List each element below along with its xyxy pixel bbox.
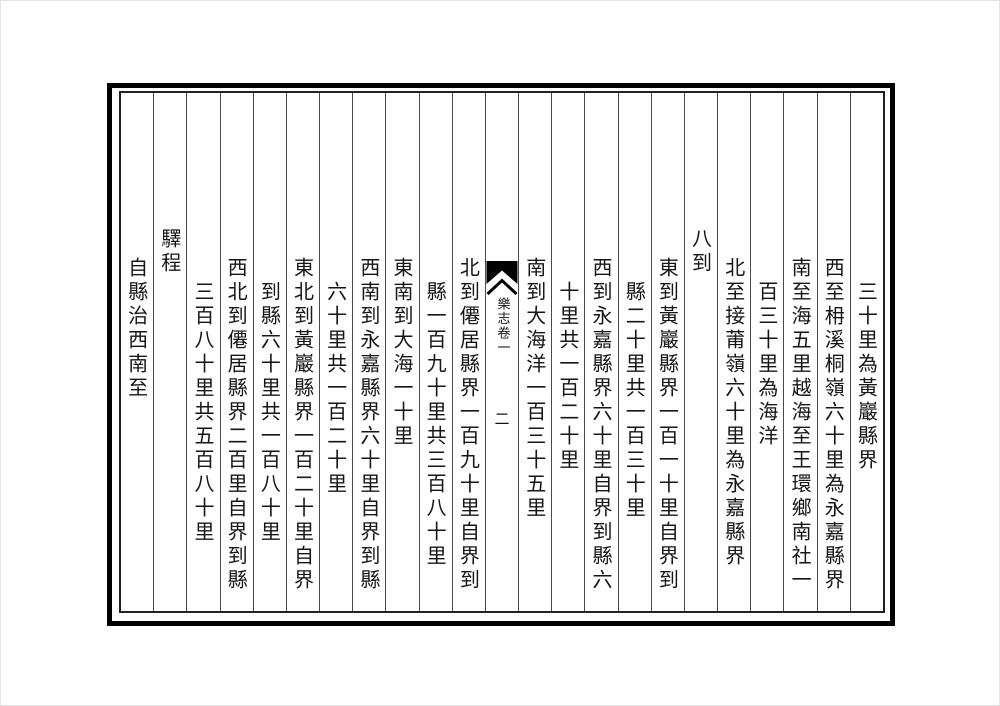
column-text: 北到僊居縣界一百九十里自界到 — [454, 257, 483, 593]
volume-title: 樂志卷一 — [493, 297, 512, 355]
text-column: 東南到大海一十里 — [386, 93, 419, 611]
text-column: 縣一百九十里共三百八十里 — [420, 93, 453, 611]
text-column: 六十里共一百二十里 — [320, 93, 353, 611]
text-columns-container: 三十里為黃巖縣界西至枏溪桐嶺六十里為永嘉縣界南至海五里越海至王環鄉南社一百三十里… — [121, 93, 883, 611]
text-column: 南至海五里越海至王環鄉南社一 — [784, 93, 817, 611]
text-column: 到縣六十里共一百八十里 — [254, 93, 287, 611]
column-text: 北至接莆嶺六十里為永嘉縣界 — [720, 257, 749, 569]
column-text: 六十里共一百二十里 — [322, 281, 351, 497]
section-heading-column: 八到 — [685, 93, 718, 611]
column-text: 西至枏溪桐嶺六十里為永嘉縣界 — [819, 257, 848, 593]
column-text: 南至海五里越海至王環鄉南社一 — [786, 257, 815, 593]
column-text: 西南到永嘉縣界六十里自界到縣 — [355, 257, 384, 593]
column-text: 西到永嘉縣界六十里自界到縣六 — [587, 257, 616, 593]
page-number: 二 — [492, 411, 513, 426]
text-column: 百三十里為海洋 — [751, 93, 784, 611]
text-column: 縣二十里共一百三十里 — [619, 93, 652, 611]
text-column: 十里共一百二十里 — [552, 93, 585, 611]
text-column: 三十里為黃巖縣界 — [851, 93, 883, 611]
text-column: 三百八十里共五百八十里 — [187, 93, 220, 611]
section-heading-column: 驛程 — [154, 93, 187, 611]
column-text: 八到 — [687, 228, 716, 276]
column-text: 自縣治西南至 — [123, 257, 152, 401]
column-text: 東到黃巖縣界一百一十里自界到 — [653, 257, 682, 593]
text-column: 西至枏溪桐嶺六十里為永嘉縣界 — [818, 93, 851, 611]
text-column: 北至接莆嶺六十里為永嘉縣界 — [718, 93, 751, 611]
column-text: 東南到大海一十里 — [388, 257, 417, 449]
plate-inner-frame: 三十里為黃巖縣界西至枏溪桐嶺六十里為永嘉縣界南至海五里越海至王環鄉南社一百三十里… — [119, 91, 885, 613]
fold-column: 樂志卷一二 — [486, 93, 519, 611]
text-column: 西北到僊居縣界二百里自界到縣 — [221, 93, 254, 611]
text-column: 西南到永嘉縣界六十里自界到縣 — [353, 93, 386, 611]
column-text: 十里共一百二十里 — [554, 281, 583, 473]
text-column: 東北到黃巖縣界一百二十里自界 — [287, 93, 320, 611]
scanned-page: 三十里為黃巖縣界西至枏溪桐嶺六十里為永嘉縣界南至海五里越海至王環鄉南社一百三十里… — [0, 0, 1000, 706]
column-text: 東北到黃巖縣界一百二十里自界 — [288, 257, 317, 593]
text-column: 自縣治西南至 — [121, 93, 154, 611]
column-text: 南到大海洋一百三十五里 — [521, 257, 550, 521]
text-column: 東到黃巖縣界一百一十里自界到 — [652, 93, 685, 611]
text-column: 北到僊居縣界一百九十里自界到 — [453, 93, 486, 611]
column-text: 西北到僊居縣界二百里自界到縣 — [222, 257, 251, 593]
column-text: 三百八十里共五百八十里 — [189, 281, 218, 545]
column-text: 縣一百九十里共三百八十里 — [421, 281, 450, 569]
column-text: 三十里為黃巖縣界 — [852, 281, 881, 473]
text-column: 西到永嘉縣界六十里自界到縣六 — [585, 93, 618, 611]
column-text: 百三十里為海洋 — [753, 281, 782, 449]
column-text: 縣二十里共一百三十里 — [620, 281, 649, 521]
text-column: 南到大海洋一百三十五里 — [519, 93, 552, 611]
fishtail-icon — [487, 261, 518, 295]
column-text: 驛程 — [156, 228, 185, 276]
column-text: 到縣六十里共一百八十里 — [255, 281, 284, 545]
